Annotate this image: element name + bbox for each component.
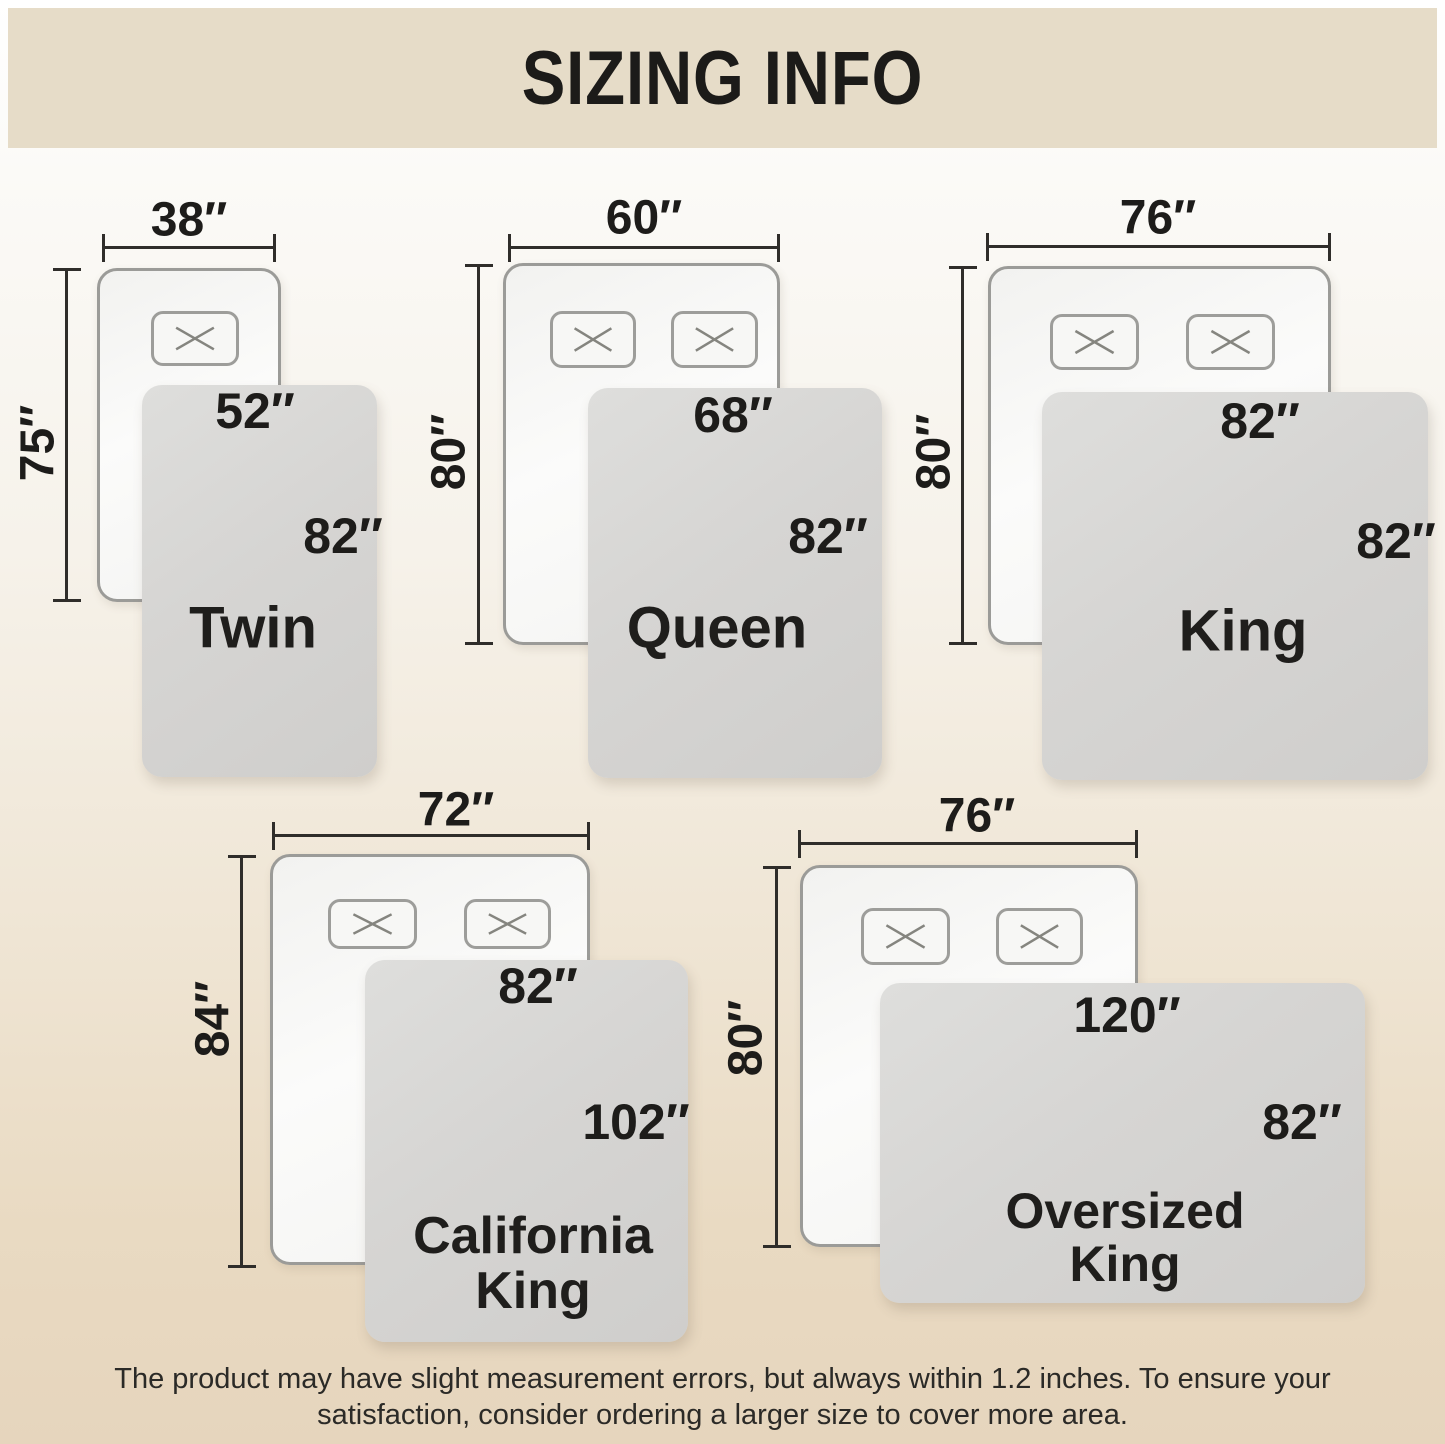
- oversized-king-pillow-right: [996, 908, 1083, 965]
- queen-name-text: Queen: [627, 597, 808, 658]
- oversized-king-name-line1: Oversized: [1005, 1185, 1244, 1238]
- disclaimer-line-1: The product may have slight measurement …: [0, 1363, 1445, 1396]
- california-king-length-dimension-line: [240, 855, 243, 1268]
- oversized-king-blanket-width-label: 120″: [1073, 986, 1180, 1044]
- pillow-x-icon: [467, 902, 548, 946]
- king-pillow-right: [1186, 314, 1275, 370]
- sizing-info-infographic: SIZING INFO 38″ 75″ 52″ 82″ Twin 60″ 80″: [0, 0, 1445, 1444]
- california-king-blanket-width-label: 82″: [498, 957, 578, 1015]
- california-king-mattress-length-label: 84″: [186, 981, 241, 1057]
- pillow-x-icon: [999, 911, 1080, 962]
- twin-blanket-length-label: 82″: [303, 507, 383, 565]
- oversized-king-mattress-length-label: 80″: [719, 1000, 774, 1076]
- pillow-x-icon: [1053, 317, 1136, 367]
- twin-name-text: Twin: [189, 597, 317, 658]
- queen-width-dimension-line: [508, 246, 780, 249]
- oversized-king-name-label: Oversized King: [1005, 1185, 1244, 1291]
- king-name-label: King: [1179, 600, 1308, 661]
- california-king-blanket-length-label: 102″: [582, 1093, 689, 1151]
- queen-pillow-right: [671, 311, 758, 368]
- queen-mattress-width-label: 60″: [606, 191, 682, 246]
- king-blanket: [1042, 392, 1428, 780]
- pillow-x-icon: [154, 314, 236, 363]
- pillow-x-icon: [331, 902, 414, 946]
- california-king-name-line2: King: [413, 1264, 653, 1319]
- california-king-pillow-left: [328, 899, 417, 949]
- king-mattress-width-label: 76″: [1120, 191, 1196, 246]
- california-king-mattress-width-label: 72″: [418, 783, 494, 838]
- pillow-x-icon: [864, 911, 947, 962]
- oversized-king-blanket-length-label: 82″: [1262, 1093, 1342, 1151]
- california-king-name-line1: California: [413, 1209, 653, 1264]
- king-blanket-length-label: 82″: [1356, 512, 1436, 570]
- king-mattress-length-label: 80″: [907, 414, 962, 490]
- oversized-king-pillow-left: [861, 908, 950, 965]
- twin-mattress-width-label: 38″: [151, 193, 227, 248]
- california-king-pillow-right: [464, 899, 551, 949]
- oversized-king-length-dimension-line: [775, 866, 778, 1248]
- queen-blanket-width-label: 68″: [693, 386, 773, 444]
- pillow-x-icon: [674, 314, 755, 365]
- oversized-king-name-line2: King: [1005, 1238, 1244, 1291]
- king-pillow-left: [1050, 314, 1139, 370]
- california-king-name-label: California King: [413, 1209, 653, 1319]
- page-title: SIZING INFO: [522, 35, 924, 122]
- twin-name-label: Twin: [189, 597, 317, 658]
- pillow-x-icon: [553, 314, 633, 365]
- queen-name-label: Queen: [627, 597, 808, 658]
- queen-pillow-left: [550, 311, 636, 368]
- queen-mattress-length-label: 80″: [422, 414, 477, 490]
- twin-blanket-width-label: 52″: [215, 382, 295, 440]
- queen-length-dimension-line: [477, 264, 480, 645]
- disclaimer-line-2: satisfaction, consider ordering a larger…: [0, 1399, 1445, 1432]
- pillow-x-icon: [1189, 317, 1272, 367]
- queen-blanket-length-label: 82″: [788, 507, 868, 565]
- title-banner: SIZING INFO: [8, 8, 1437, 148]
- king-blanket-width-label: 82″: [1220, 392, 1300, 450]
- queen-blanket: [588, 388, 882, 778]
- oversized-king-mattress-width-label: 76″: [939, 789, 1015, 844]
- twin-blanket: [142, 385, 377, 777]
- king-name-text: King: [1179, 600, 1308, 661]
- twin-mattress-length-label: 75″: [11, 405, 66, 481]
- twin-pillow: [151, 311, 239, 366]
